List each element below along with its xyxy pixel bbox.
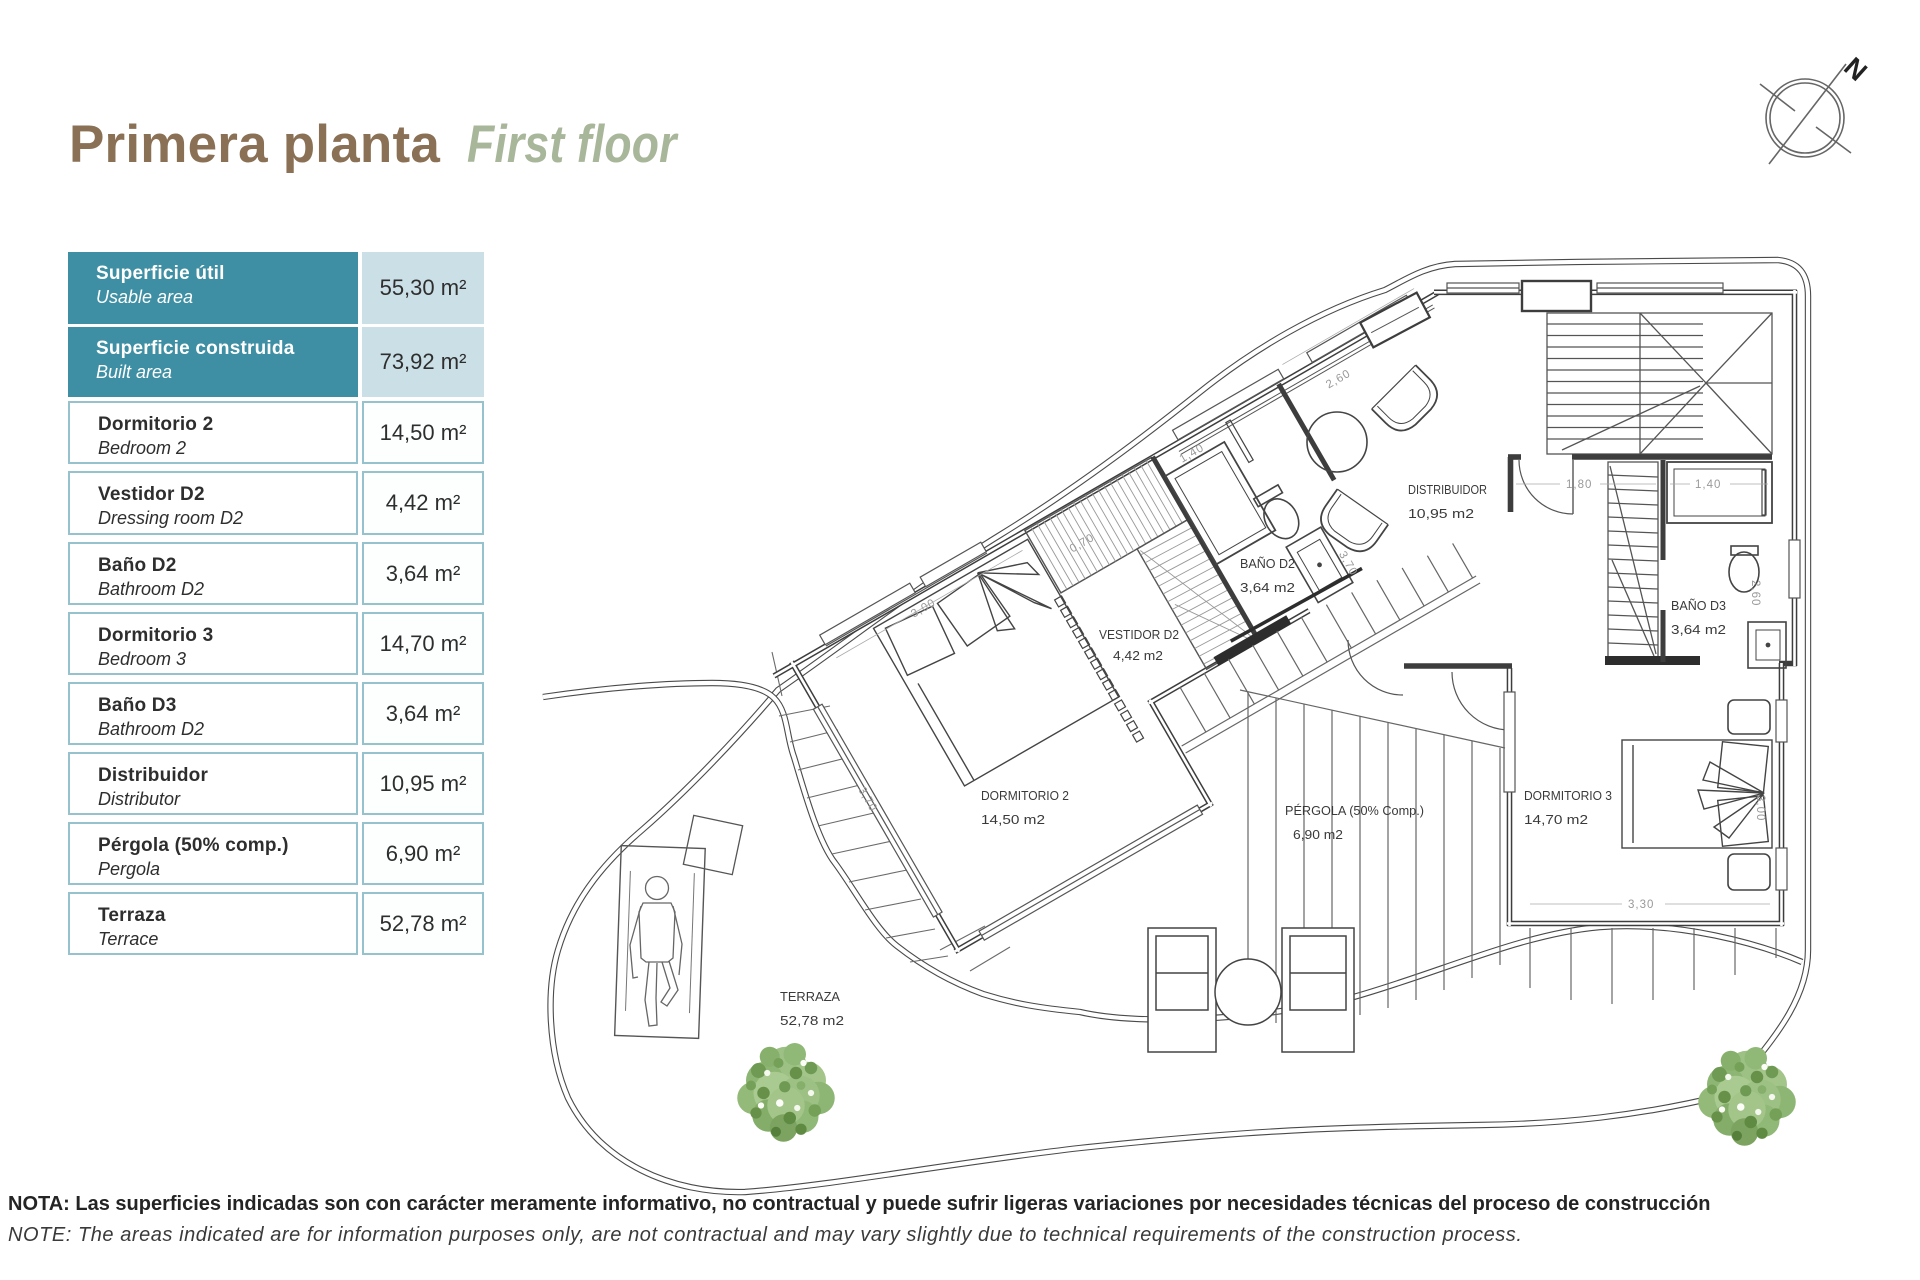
svg-text:0,70: 0,70 [1068,532,1097,556]
svg-text:DORMITORIO 3: DORMITORIO 3 [1524,789,1612,803]
svg-text:VESTIDOR D2: VESTIDOR D2 [1099,628,1179,642]
svg-text:3,00: 3,00 [1754,795,1766,821]
svg-text:14,70 m2: 14,70 m2 [1524,813,1588,827]
svg-text:10,95 m2: 10,95 m2 [1408,507,1474,521]
svg-text:DISTRIBUIDOR: DISTRIBUIDOR [1408,483,1487,497]
svg-text:1,40: 1,40 [1695,479,1721,491]
svg-text:TERRAZA: TERRAZA [780,990,841,1004]
svg-text:6,90 m2: 6,90 m2 [1293,828,1343,842]
svg-text:PÉRGOLA (50% Comp.): PÉRGOLA (50% Comp.) [1285,803,1424,818]
svg-text:3,00: 3,00 [909,597,938,621]
svg-text:3,30: 3,30 [1628,899,1654,911]
svg-text:52,78 m2: 52,78 m2 [780,1014,844,1028]
svg-text:1,80: 1,80 [1566,479,1592,491]
svg-text:N: N [1838,52,1873,87]
svg-text:1,40: 1,40 [1178,442,1207,466]
svg-text:3,64 m2: 3,64 m2 [1671,623,1726,637]
svg-text:2,60: 2,60 [1749,580,1761,606]
svg-text:2,60: 2,60 [1324,368,1353,392]
svg-text:BAÑO D2: BAÑO D2 [1240,557,1295,571]
svg-text:BAÑO D3: BAÑO D3 [1671,599,1726,613]
svg-text:4,42 m2: 4,42 m2 [1113,649,1163,663]
svg-text:3,64 m2: 3,64 m2 [1240,581,1295,595]
svg-text:14,50 m2: 14,50 m2 [981,813,1045,827]
svg-text:DORMITORIO 2: DORMITORIO 2 [981,789,1069,803]
